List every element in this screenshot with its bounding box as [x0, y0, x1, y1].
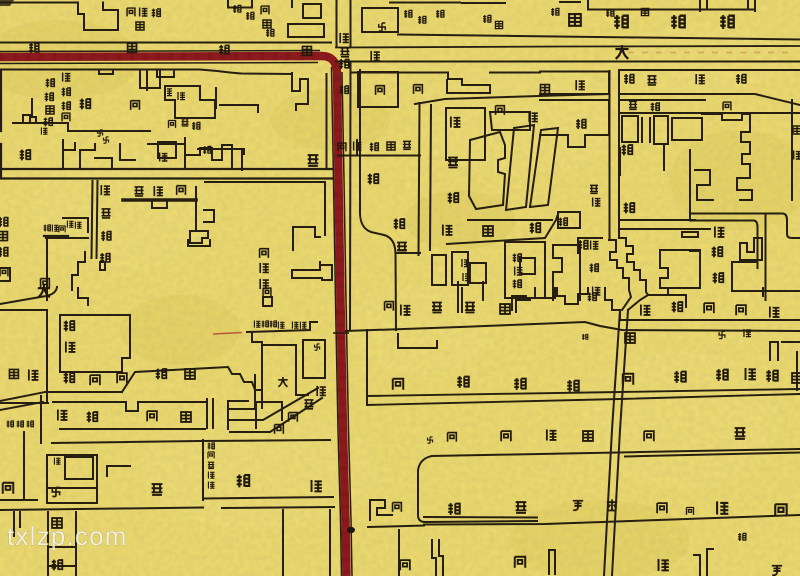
svg-text:txlzp.com: txlzp.com	[7, 521, 128, 551]
